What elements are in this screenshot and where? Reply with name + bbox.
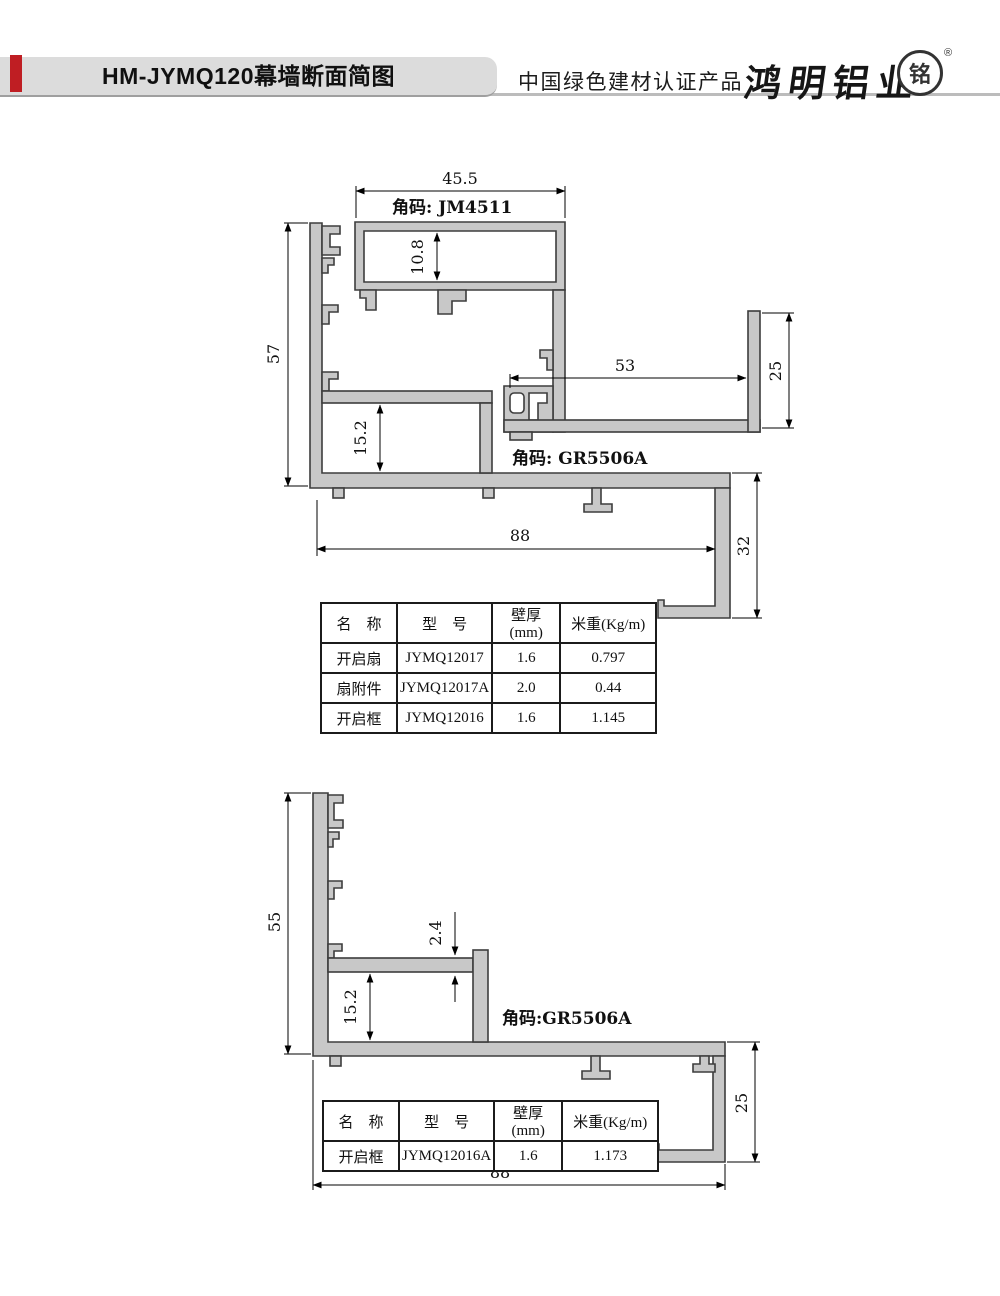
spec-table-1: 名 称 型 号 壁厚(mm) 米重(Kg/m) 开启扇 JYMQ12017 1.…: [320, 602, 657, 734]
dim2-25-text: 25: [732, 1093, 751, 1113]
col-header-wall: 壁厚(mm): [494, 1101, 562, 1141]
cell-wall: 1.6: [492, 643, 560, 673]
col-header-name: 名 称: [321, 603, 397, 643]
profile2-hook-mid: [328, 881, 342, 899]
profile2-foot-a: [330, 1056, 341, 1066]
registered-trademark-symbol: ®: [944, 47, 952, 59]
col-header-model: 型 号: [397, 603, 492, 643]
cell-weight: 0.44: [560, 673, 656, 703]
profile2-clip-small: [328, 832, 339, 847]
cell-model: JYMQ12016: [397, 703, 492, 733]
cell-model: JYMQ12017: [397, 643, 492, 673]
profile2-hook-low: [328, 944, 342, 958]
corner-code-label-2: 角码:GR5506A: [502, 1008, 632, 1029]
red-accent-bar: [10, 55, 22, 92]
profile1-box-left-foot: [360, 290, 376, 310]
cell-wall: 1.6: [492, 703, 560, 733]
profile1-box-center-step: [438, 290, 466, 314]
profile2-small-hook: [693, 1056, 715, 1072]
profile1-shelf: [504, 420, 760, 432]
profile1-foot-b: [483, 488, 494, 498]
profile1-top-box: [355, 222, 565, 290]
table-row: 扇附件 JYMQ12017A 2.0 0.44: [321, 673, 656, 703]
profile1-hook-mid: [322, 305, 338, 324]
brand-seal-icon: 铭: [897, 50, 943, 96]
dim1-57-text: 57: [264, 344, 283, 364]
profile1-t-hook: [584, 488, 612, 512]
col-header-wall: 壁厚(mm): [492, 603, 560, 643]
profile2-shelf: [328, 958, 473, 972]
profile1-lowerbox-rightwall: [480, 403, 492, 473]
cell-model: JYMQ12016A: [399, 1141, 494, 1171]
table-row: 开启扇 JYMQ12017 1.6 0.797: [321, 643, 656, 673]
cell-weight: 0.797: [560, 643, 656, 673]
dim2-152-text: 15.2: [341, 989, 360, 1025]
cell-name: 开启框: [323, 1141, 399, 1171]
dim1-53-text: 53: [615, 356, 635, 375]
col-header-weight: 米重(Kg/m): [562, 1101, 658, 1141]
dim1-32-text: 32: [734, 536, 753, 556]
certification-label: 中国绿色建材认证产品: [518, 66, 743, 96]
page: { "header": { "title": "HM-JYMQ120幕墙断面简图…: [0, 0, 1000, 1296]
cell-wall: 1.6: [494, 1141, 562, 1171]
profile1-c-clip: [322, 226, 340, 255]
profile1-upper-right-wall: [748, 311, 760, 432]
cell-weight: 1.173: [562, 1141, 658, 1171]
dim2-24-text: 2.4: [426, 920, 445, 945]
cell-weight: 1.145: [560, 703, 656, 733]
table-row: 开启框 JYMQ12016A 1.6 1.173: [323, 1141, 658, 1171]
corner-code-side-label: 角码: GR5506A: [512, 448, 648, 469]
profile1-clip-small: [322, 258, 334, 273]
profile1-right-bar: [553, 290, 565, 432]
col-header-name: 名 称: [323, 1101, 399, 1141]
cell-name: 扇附件: [321, 673, 397, 703]
dim1-108-text: 10.8: [408, 239, 427, 275]
profile2-right-wall-upstand: [473, 950, 488, 1042]
profile1-right-bar-hook: [540, 350, 553, 370]
dim1-45-text: 45.5: [442, 169, 478, 188]
cell-name: 开启框: [321, 703, 397, 733]
profile1-right-wall-foot: [658, 488, 730, 618]
table-row: 名 称 型 号 壁厚(mm) 米重(Kg/m): [321, 603, 656, 643]
profile1-interlock-hole: [510, 393, 524, 413]
col-header-weight: 米重(Kg/m): [560, 603, 656, 643]
profile2-t-hook: [582, 1056, 610, 1079]
page-title: HM-JYMQ120幕墙断面简图: [0, 57, 497, 95]
profile2-c-clip: [328, 795, 343, 828]
spec-table-2: 名 称 型 号 壁厚(mm) 米重(Kg/m) 开启框 JYMQ12016A 1…: [322, 1100, 659, 1172]
cell-name: 开启扇: [321, 643, 397, 673]
cell-model: JYMQ12017A: [397, 673, 492, 703]
profile1-hook-low: [322, 372, 338, 391]
title-banner: HM-JYMQ120幕墙断面简图: [0, 57, 497, 97]
dim1-88-text: 88: [510, 526, 530, 545]
dim1-152-text: 15.2: [351, 420, 370, 456]
col-header-model: 型 号: [399, 1101, 494, 1141]
corner-code-top-label: 角码: JM4511: [392, 197, 512, 218]
profile-drawing-1: [310, 222, 760, 618]
table-row: 开启框 JYMQ12016 1.6 1.145: [321, 703, 656, 733]
profile1-shelf-bump: [510, 432, 532, 440]
profile1-lowerbox-top: [322, 391, 492, 403]
dim2-55-text: 55: [265, 912, 284, 932]
cell-wall: 2.0: [492, 673, 560, 703]
table-row: 名 称 型 号 壁厚(mm) 米重(Kg/m): [323, 1101, 658, 1141]
profile1-foot-a: [333, 488, 344, 498]
dim1-25-text: 25: [766, 361, 785, 381]
